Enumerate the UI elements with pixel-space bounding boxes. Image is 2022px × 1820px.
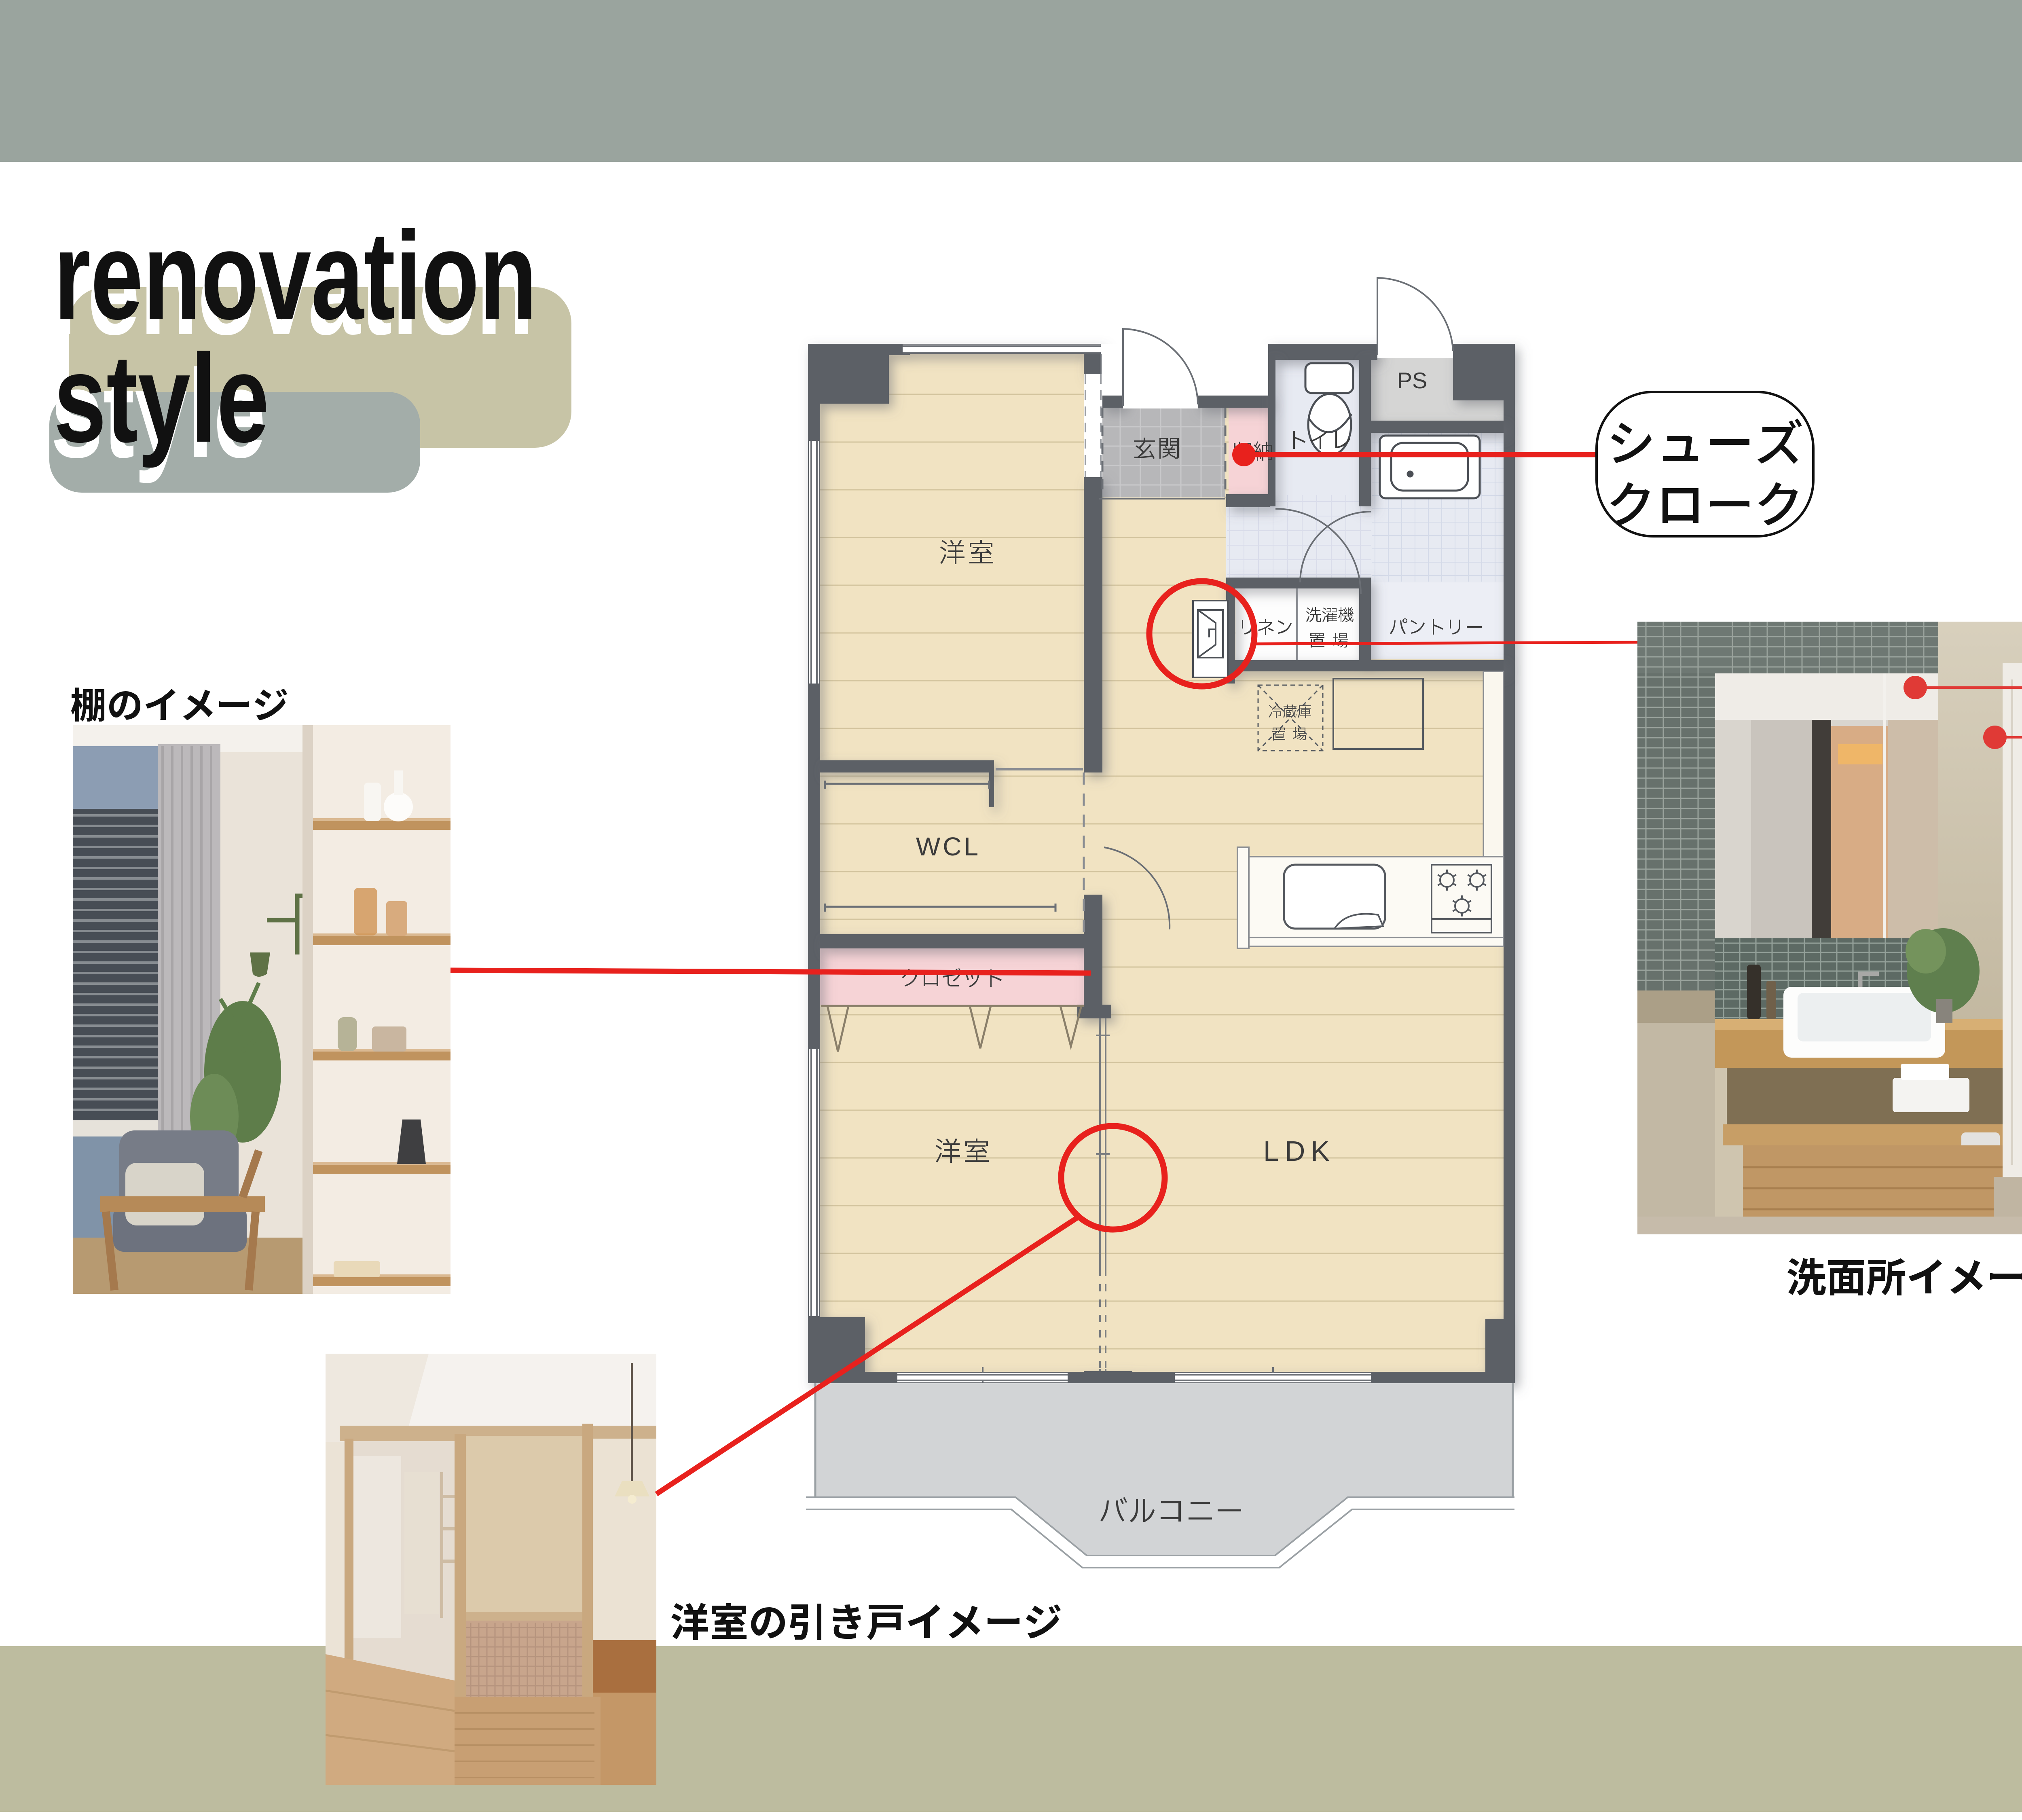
- svg-text:renovation: renovation: [54, 205, 537, 346]
- svg-text:LDK: LDK: [1263, 1135, 1335, 1167]
- svg-text:PS: PS: [1397, 368, 1428, 393]
- svg-text:style: style: [54, 328, 269, 469]
- svg-text:WCL: WCL: [916, 832, 981, 861]
